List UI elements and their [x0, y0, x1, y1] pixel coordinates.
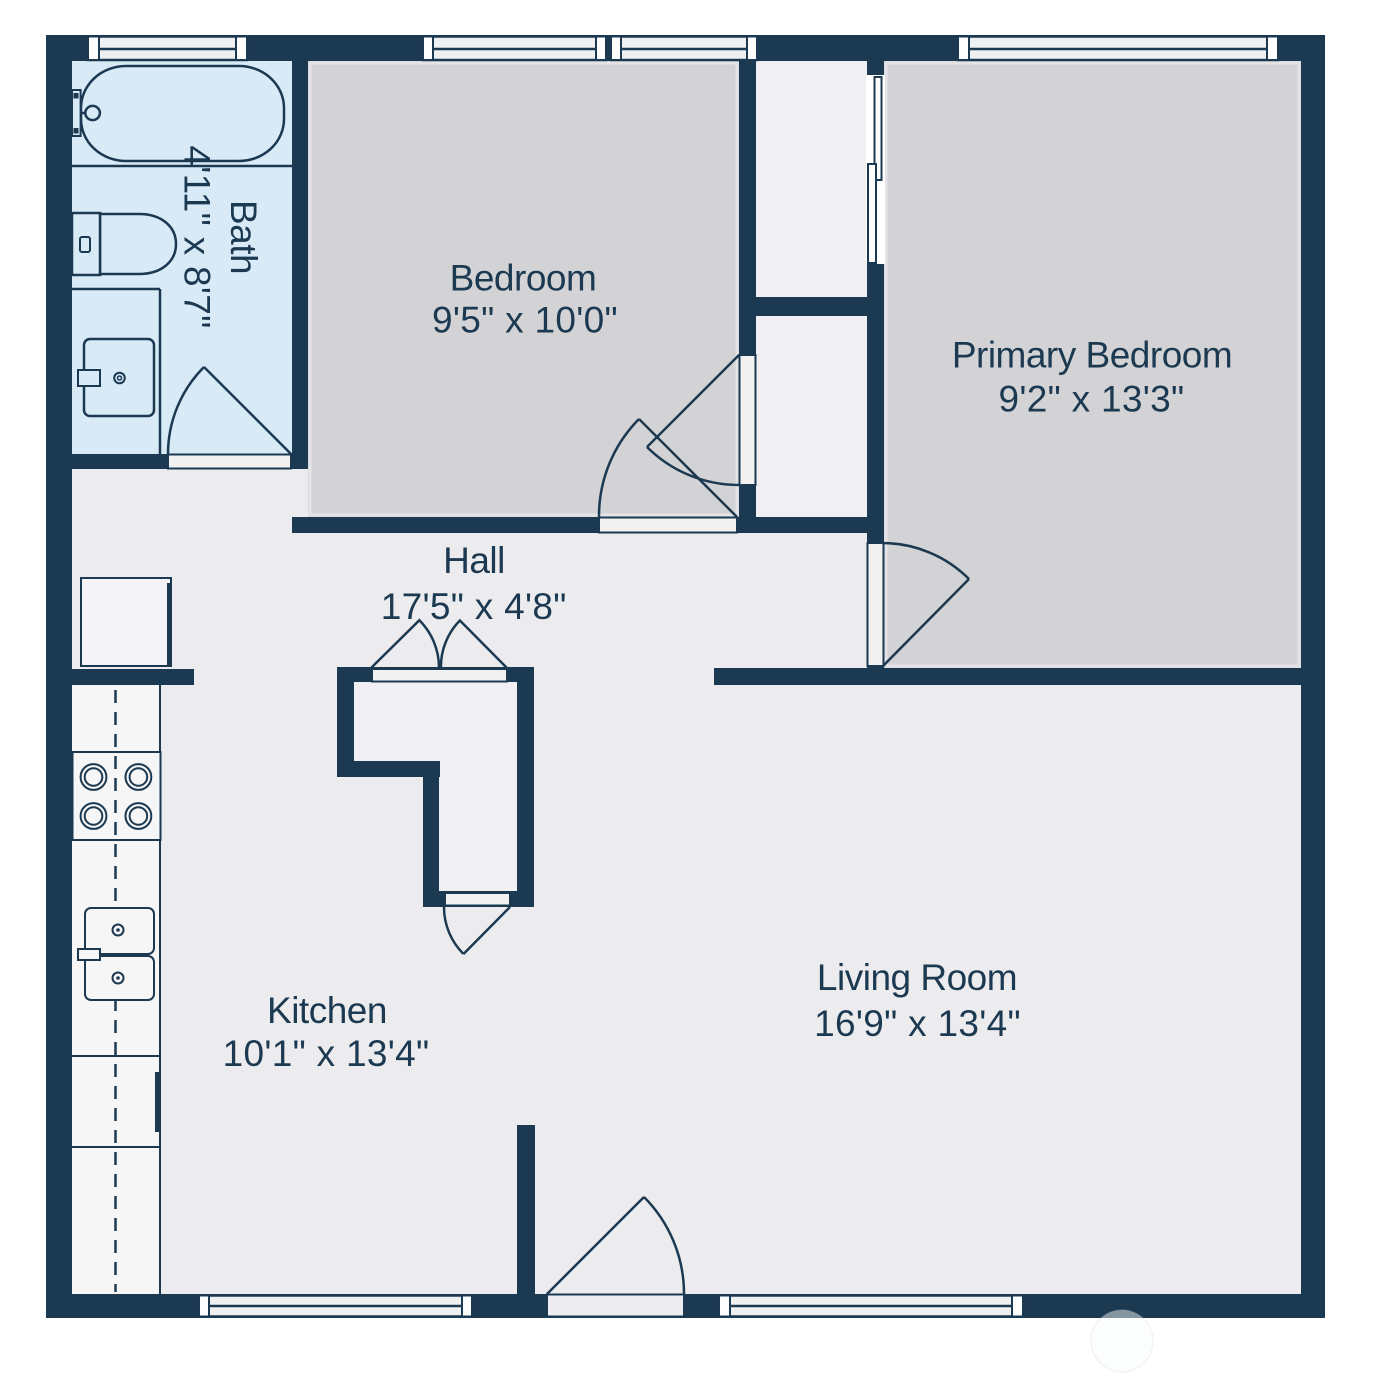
svg-text:10'1" x 13'4": 10'1" x 13'4"	[223, 1033, 430, 1074]
svg-text:4'11" x 8'7": 4'11" x 8'7"	[177, 145, 218, 328]
svg-text:Bedroom: Bedroom	[450, 258, 597, 299]
svg-text:Primary Bedroom: Primary Bedroom	[952, 335, 1232, 376]
svg-text:17'5" x 4'8": 17'5" x 4'8"	[381, 586, 567, 627]
svg-text:Hall: Hall	[443, 540, 505, 581]
svg-text:9'2" x 13'3": 9'2" x 13'3"	[999, 379, 1185, 420]
svg-text:9'5" x 10'0": 9'5" x 10'0"	[432, 300, 618, 341]
svg-text:Kitchen: Kitchen	[267, 990, 387, 1031]
svg-text:16'9" x 13'4": 16'9" x 13'4"	[814, 1003, 1021, 1044]
svg-text:Living Room: Living Room	[817, 957, 1017, 998]
svg-text:Bath: Bath	[223, 200, 264, 274]
